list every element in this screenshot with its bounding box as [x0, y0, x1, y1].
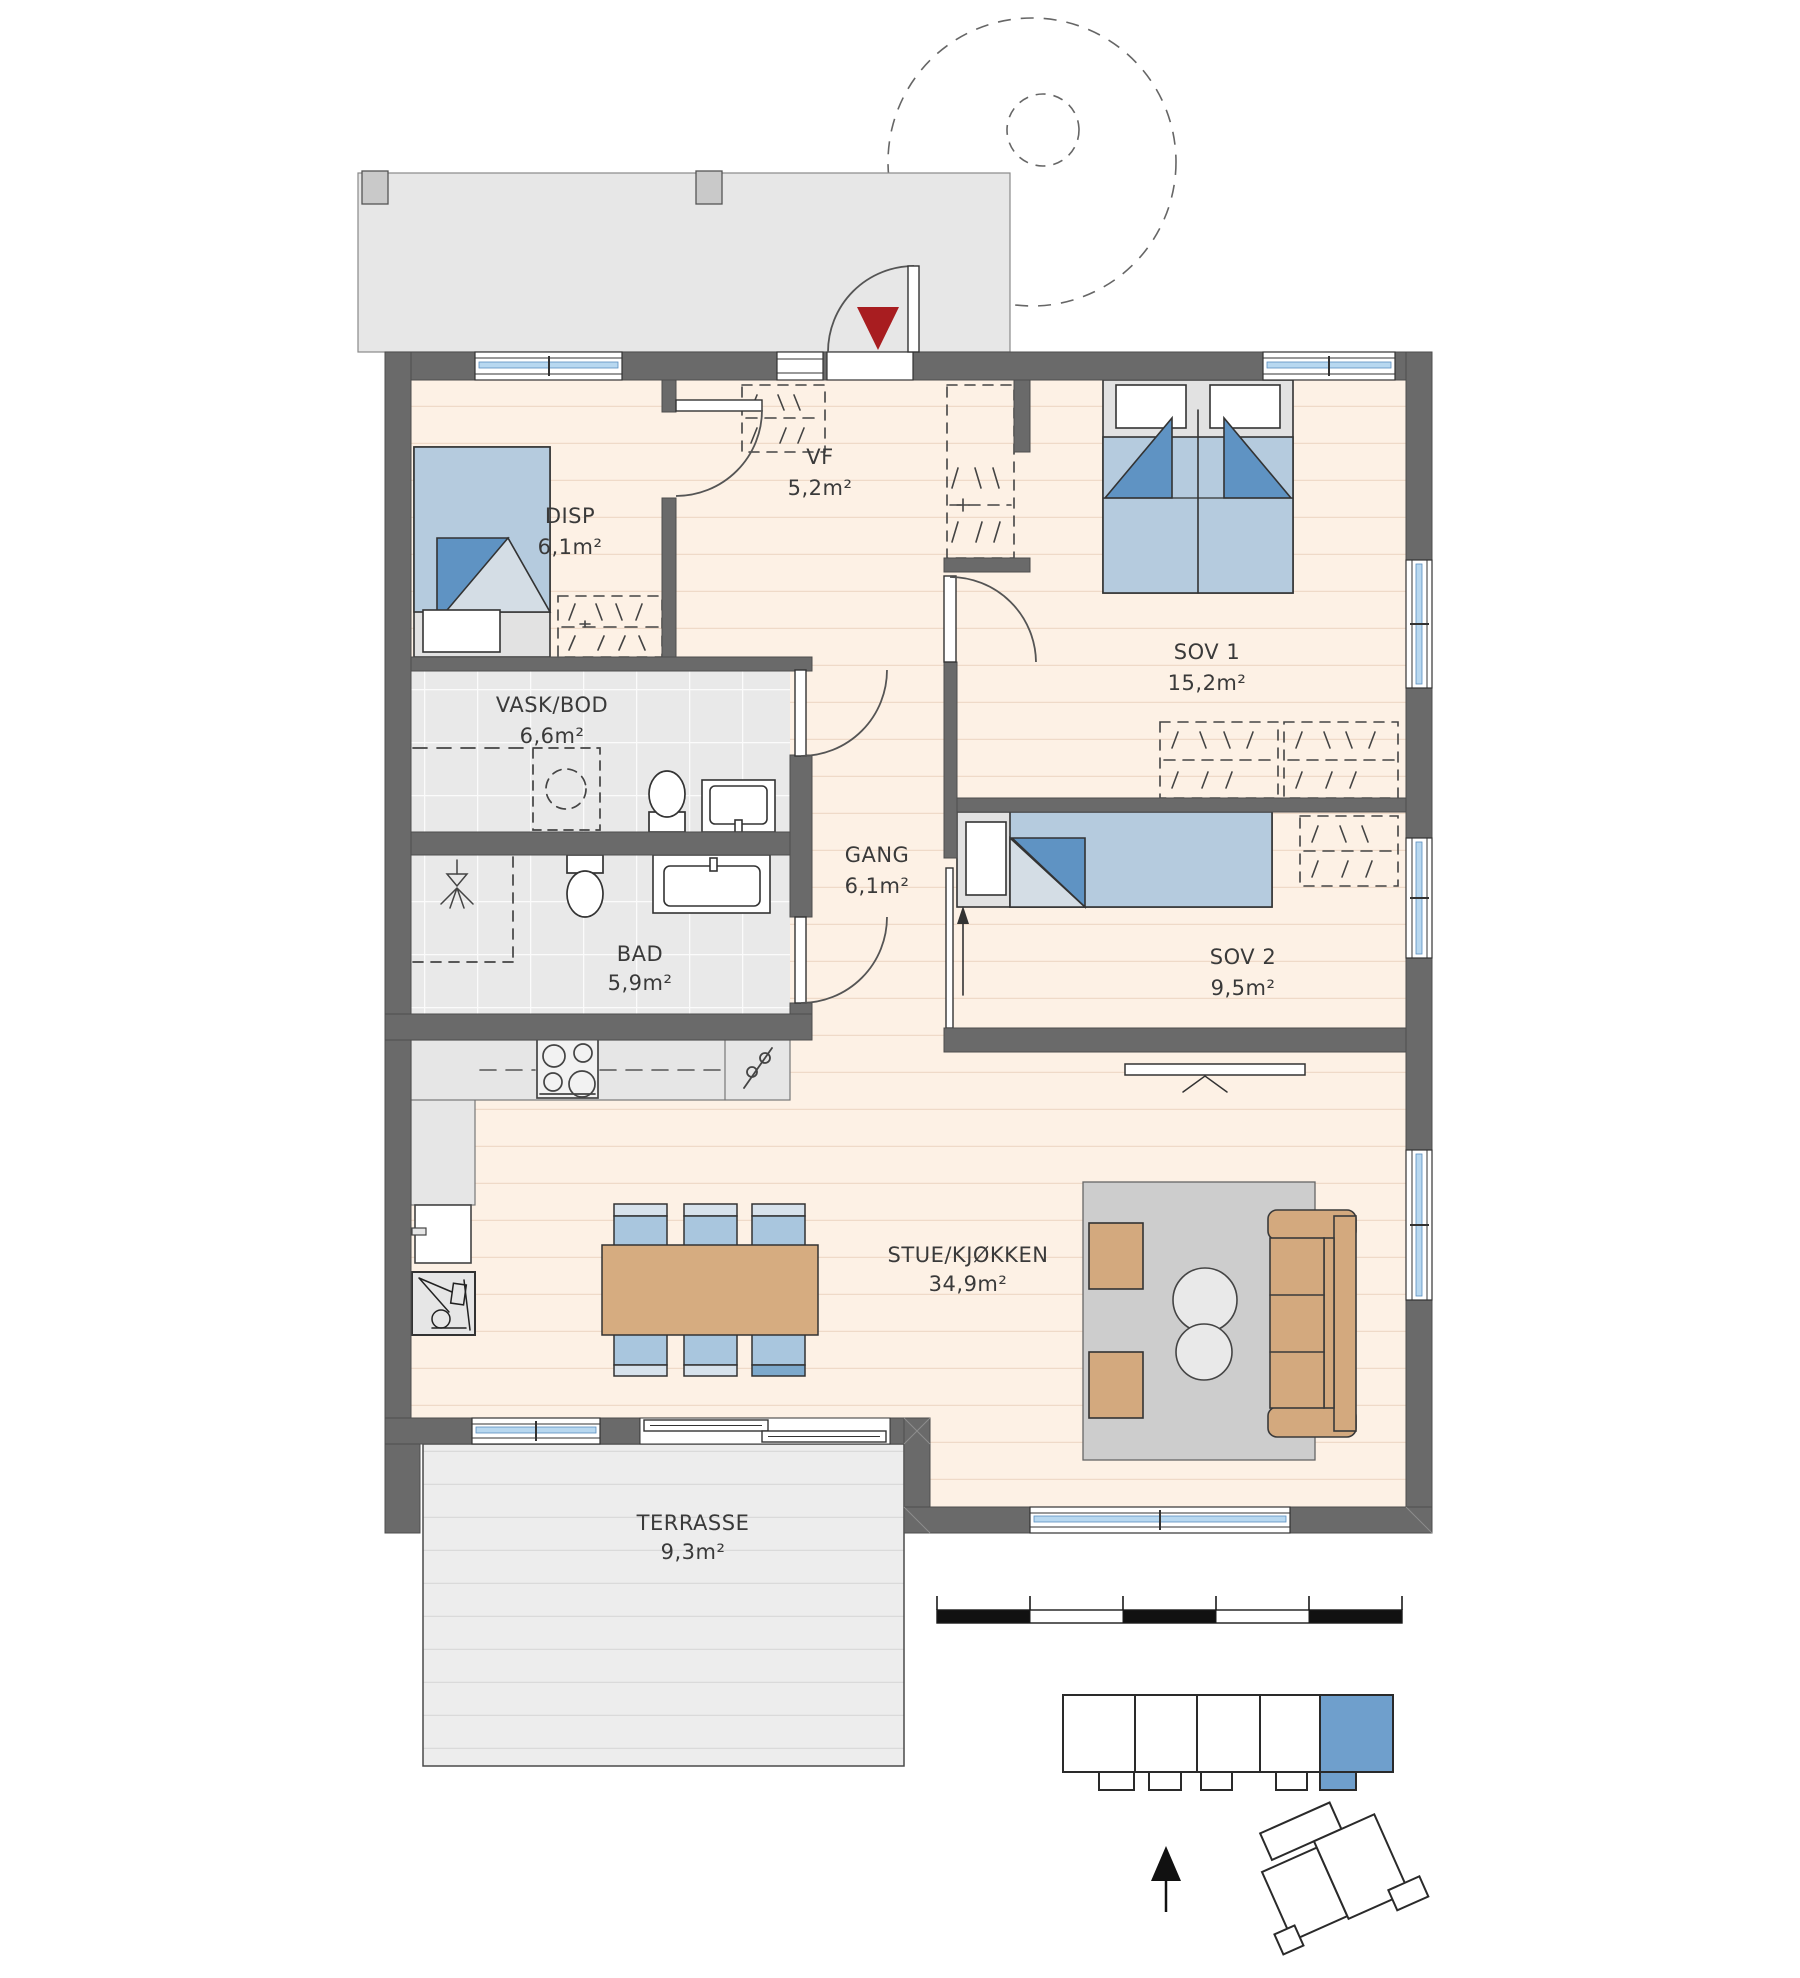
toilet-vask-icon — [649, 771, 685, 832]
room-area-stue: 34,9m² — [929, 1272, 1008, 1296]
room-area-terrasse: 9,3m² — [661, 1540, 726, 1564]
room-label-stue: STUE/KJØKKEN — [888, 1243, 1049, 1267]
room-area-bad: 5,9m² — [608, 971, 673, 995]
site-unit — [1197, 1695, 1260, 1772]
site-unit-porch-highlighted — [1320, 1772, 1356, 1790]
fridge-icon — [412, 1205, 471, 1263]
armchair — [1089, 1352, 1143, 1418]
armchair — [1089, 1223, 1143, 1289]
window-entrance-sidelight — [777, 352, 823, 380]
dining-chairs-bottom — [614, 1333, 805, 1376]
north-arrow-icon — [1151, 1846, 1181, 1912]
room-label-vaskbod: VASK/BOD — [496, 693, 608, 717]
window-sov1-top — [1263, 352, 1395, 380]
room-area-vf: 5,2m² — [788, 476, 853, 500]
window-disp — [475, 352, 622, 380]
site-plan — [1063, 1695, 1428, 1960]
bed-sov2 — [957, 812, 1272, 907]
scale-bar — [937, 1596, 1402, 1623]
room-label-bad: BAD — [617, 942, 663, 966]
room-label-terrasse: TERRASSE — [636, 1511, 750, 1535]
site-unit — [1260, 1695, 1320, 1772]
sliding-door-terrasse — [640, 1418, 890, 1444]
site-unit-porch — [1201, 1772, 1232, 1790]
site-unit-highlighted — [1320, 1695, 1393, 1772]
site-unit — [1135, 1695, 1197, 1772]
room-label-vf: VF — [806, 445, 833, 469]
dining-set — [602, 1204, 818, 1376]
room-label-gang: GANG — [845, 843, 910, 867]
site-unit-porch — [1099, 1772, 1134, 1790]
vanity-sink-bad-icon — [653, 855, 770, 913]
room-label-disp: DISP — [545, 504, 595, 528]
fireplace-icon — [412, 1272, 475, 1335]
cooktop-icon — [537, 1038, 598, 1098]
window-stue-bottom — [1030, 1507, 1290, 1533]
dining-chairs-top — [614, 1204, 805, 1248]
room-area-gang: 6,1m² — [845, 874, 910, 898]
floor-plan-page: DISP 6,1m² VF 5,2m² SOV 1 15,2m² VASK/BO… — [0, 0, 1800, 1978]
window-sov2-right — [1406, 838, 1432, 958]
room-area-sov2: 9,5m² — [1211, 976, 1276, 1000]
terrasse-deck — [423, 1444, 904, 1766]
dining-table — [602, 1245, 818, 1335]
room-area-vaskbod: 6,6m² — [520, 724, 585, 748]
sofa — [1268, 1210, 1356, 1437]
site-neighbor-building — [1235, 1781, 1429, 1960]
window-sov1-right — [1406, 560, 1432, 688]
room-area-disp: 6,1m² — [538, 535, 603, 559]
floor-plan-drawing: DISP 6,1m² VF 5,2m² SOV 1 15,2m² VASK/BO… — [0, 0, 1800, 1978]
sink-vask-icon — [702, 780, 775, 832]
bed-sov1 — [1103, 380, 1293, 593]
room-label-sov1: SOV 1 — [1174, 640, 1240, 664]
porch-post — [362, 171, 388, 204]
bed-disp — [414, 447, 550, 657]
toilet-bad-icon — [567, 855, 603, 917]
site-unit-porch — [1276, 1772, 1307, 1790]
window-stue-right — [1406, 1150, 1432, 1300]
coffee-table — [1173, 1268, 1237, 1332]
room-area-sov1: 15,2m² — [1168, 671, 1247, 695]
site-unit-porch — [1149, 1772, 1181, 1790]
coffee-table — [1176, 1324, 1232, 1380]
room-label-sov2: SOV 2 — [1210, 945, 1276, 969]
window-kitchen-bottom — [472, 1418, 600, 1444]
site-context-dashed-circle-small — [1007, 94, 1079, 166]
porch-post — [696, 171, 722, 204]
site-unit — [1063, 1695, 1135, 1772]
